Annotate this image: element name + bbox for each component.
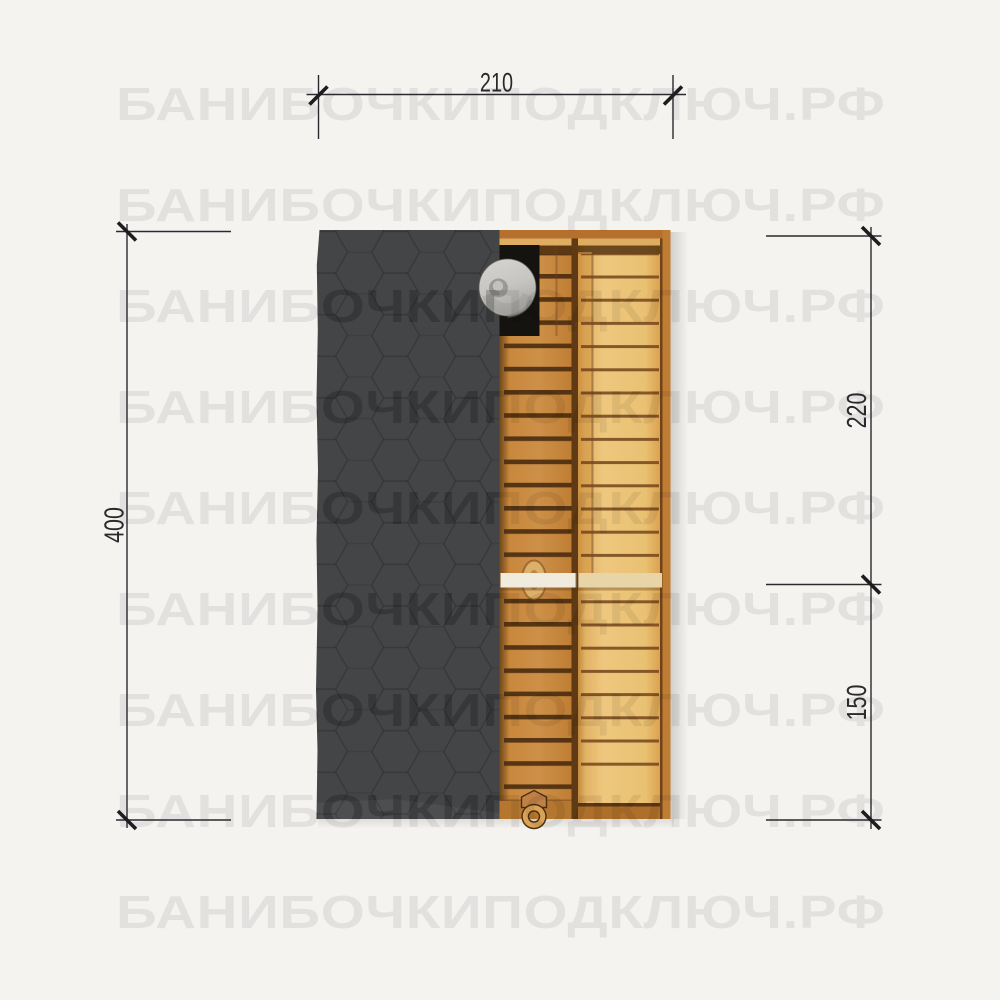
svg-text:210: 210 (480, 68, 513, 97)
svg-text:220: 220 (843, 393, 873, 429)
svg-text:150: 150 (843, 685, 873, 721)
svg-text:400: 400 (100, 507, 130, 543)
